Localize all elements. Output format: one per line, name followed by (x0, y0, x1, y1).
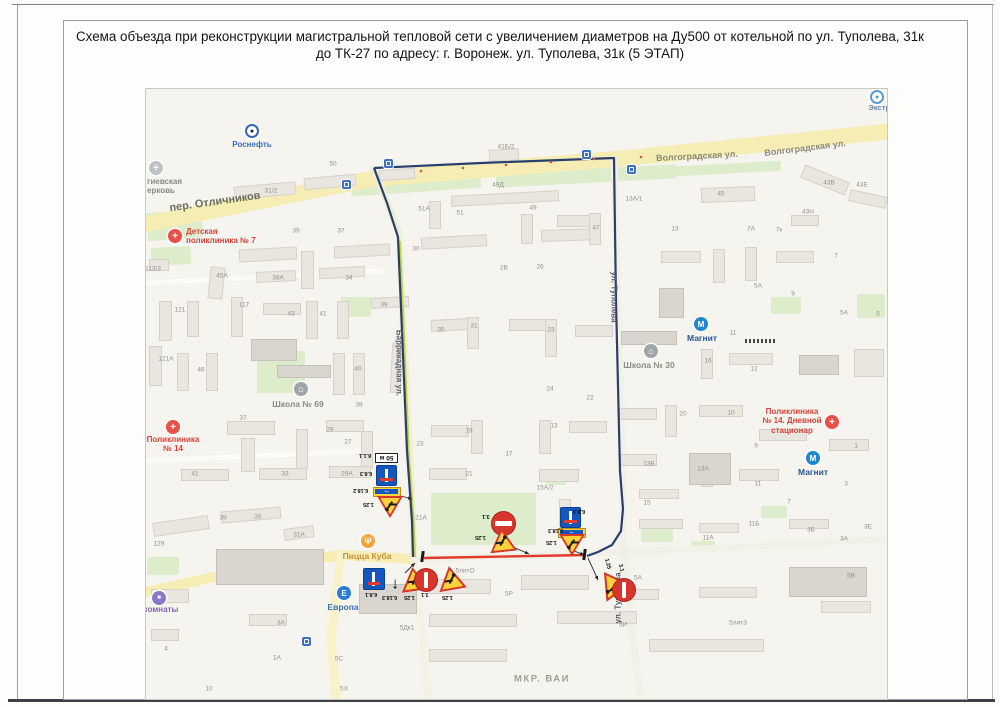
building-number: 39 (380, 302, 387, 309)
building-number: 11 (755, 481, 762, 488)
building-number: 13 (671, 226, 678, 233)
road-sign-noe (613, 579, 635, 601)
poi-label-school-30: Школа № 30 (623, 360, 674, 370)
map-dot (550, 161, 553, 164)
building-number: 45А (216, 273, 228, 280)
building-number: 23 (416, 441, 423, 448)
building-number: 43Н (802, 209, 814, 216)
building-number: 121 (175, 307, 186, 314)
poi-label-rosneft: Роснефть (232, 140, 271, 149)
building-number: 5А (754, 283, 762, 290)
transit-stop-icon (342, 180, 351, 189)
building-number: 117 (239, 302, 249, 309)
building-number: 23 (547, 327, 554, 334)
building-number: 7 (834, 253, 838, 260)
building-number: 35 (437, 327, 444, 334)
building-number: 5Х (340, 686, 348, 693)
building-number: 27 (344, 439, 351, 446)
building-number: 11Б (748, 521, 759, 528)
transit-stop-icon (384, 159, 393, 168)
building-number: 5лит3 (729, 620, 747, 627)
poi-icon-rosneft: ● (245, 124, 259, 138)
building-number: 31/2 (265, 188, 278, 195)
poi-label-clinic-14: Поликлиника № 14 (147, 435, 200, 454)
building-number: 19 (465, 428, 472, 435)
poi-label-europa: Европа (327, 602, 358, 612)
building-number: 49 (529, 205, 536, 212)
road-sign-detv: ↑ (388, 564, 399, 593)
building-number: 5И (619, 622, 627, 629)
street-label: МКР. ВАИ (514, 674, 570, 685)
poi-icon-school-69: ⌂ (294, 382, 308, 396)
building-number: 26 (536, 264, 543, 271)
scan-border-left (17, 4, 18, 701)
building-number: 29А (341, 471, 353, 478)
sign-code-label: 1.25 (363, 501, 374, 507)
detour-arrow-glyph: → (376, 490, 399, 495)
building-number: 45 (717, 191, 724, 198)
building-number: 39 (219, 515, 226, 522)
building-number: 29 (326, 427, 333, 434)
poi-icon-komnaty: ■ (152, 591, 166, 605)
building-number: 30 (412, 246, 419, 253)
road-sign-tri (435, 564, 467, 592)
building-number: 3Б (807, 527, 815, 534)
building-number: 13А (697, 466, 709, 473)
poi-icon-magnit-north: М (694, 317, 708, 331)
building-number: 13А/1 (626, 196, 643, 203)
building-number: 5С (335, 656, 343, 663)
scan-border-top (12, 4, 994, 5)
building-number: 16 (704, 358, 711, 365)
building-number: 39 (292, 228, 299, 235)
building-number: 40 (354, 366, 361, 373)
building-number: 43В (823, 180, 835, 187)
map-dot (593, 158, 596, 161)
map-dot (462, 167, 465, 170)
building-number: 9 (754, 443, 758, 450)
sign-code-label: 1.25 (404, 594, 415, 600)
sign-code-label: 3.1 (482, 513, 490, 519)
building-number: 5 (876, 311, 880, 318)
poi-icon-clinic-14-day: + (825, 415, 839, 429)
building-number: 7А (747, 226, 755, 233)
sign-code-label: 1.25 (442, 594, 453, 600)
sign-code-label: 6.18.2 (353, 487, 368, 493)
building-number: 43 (287, 311, 294, 318)
poi-label-extragaz: Экстрага (869, 104, 888, 113)
sign-code-label: 8.1.1 (359, 452, 371, 458)
map-dot (420, 170, 423, 173)
building-number: 41Б/2 (498, 144, 515, 151)
building-number: 15А/2 (537, 485, 554, 492)
building-number: 15 (643, 500, 650, 507)
sign-code-label: 3.1 (421, 591, 429, 597)
building-number: 13 (550, 423, 557, 430)
building-number: 24 (546, 386, 553, 393)
road-sign-tri (377, 496, 403, 518)
building-number: 5А (840, 310, 848, 317)
poi-icon-children-clinic-7: + (168, 229, 182, 243)
scanned-document-page: Схема объезда при реконструкции магистра… (0, 0, 1000, 707)
poi-label-komnaty: комнаты (145, 605, 178, 614)
building-number: 113/3 (145, 266, 161, 273)
building-number: 13Б (643, 461, 655, 468)
building-number: 7 (787, 499, 791, 506)
scheme-title-line2: до ТК-27 по адресу: г. Воронеж. ул. Тупо… (50, 45, 950, 62)
building-number: 5Р (505, 591, 513, 598)
building-number: 31А (293, 532, 305, 539)
building-number: 33 (281, 471, 288, 478)
building-number: 12 (750, 366, 757, 373)
road-sign-tri (488, 527, 517, 554)
building-number: 5Дк1 (400, 625, 414, 632)
map-dot (640, 156, 643, 159)
map-dot (505, 164, 508, 167)
building-number: 1А (273, 655, 281, 662)
poi-label-magnit-south: Магнит (798, 467, 828, 477)
building-number: 3 (844, 481, 848, 488)
building-number: 20 (679, 411, 686, 418)
building-number: 31 (470, 323, 477, 330)
building-number: 49Д (492, 182, 504, 189)
route-layer (146, 89, 888, 700)
building-number: 47 (592, 225, 599, 232)
building-number: 121А (158, 356, 173, 363)
building-number: 4 (164, 646, 168, 653)
street-label: Баррикадная ул. (395, 330, 404, 396)
poi-label-church: гиевская ерковь (147, 177, 182, 196)
poi-label-school-69: Школа № 69 (272, 399, 323, 409)
building-number: 38 (355, 402, 362, 409)
sign-code-label: 1.25 (475, 534, 486, 540)
poi-label-children-clinic-7: Детская поликлиника № 7 (186, 227, 256, 246)
poi-icon-clinic-14: + (166, 420, 180, 434)
poi-icon-church: + (149, 161, 163, 175)
poi-label-clinic-14-day: Поликлиника № 14. Дневной стационар (762, 407, 821, 435)
road-sign-plate: 50 м (375, 453, 398, 463)
sign-code-label: 6.18.3 (548, 527, 563, 533)
building-number: 2В (500, 265, 508, 272)
building-number: 10 (727, 410, 734, 417)
building-number: 3А (840, 536, 848, 543)
scheme-title-line1: Схема объезда при реконструкции магистра… (50, 28, 950, 45)
sign-code-label: 6.8.1 (365, 591, 377, 597)
building-number: 46 (197, 367, 204, 374)
building-number: 17 (505, 451, 512, 458)
poi-icon-extragaz: ● (870, 90, 884, 104)
sign-code-label: 6.18.3 (382, 594, 397, 600)
building-number: 21 (465, 471, 472, 478)
building-number: 37 (239, 415, 246, 422)
road-sign-dead (363, 568, 385, 590)
building-number: 21А (415, 515, 427, 522)
building-number: 1 (854, 443, 858, 450)
building-number: 5А (634, 575, 642, 582)
building-number: 41 (319, 311, 326, 318)
poi-icon-magnit-south: М (806, 451, 820, 465)
building-number: 3Е (864, 524, 872, 531)
building-number: 51 (456, 210, 463, 217)
sign-code-label: 1.25 (546, 539, 557, 545)
building-number: 34 (345, 275, 352, 282)
poi-label-pizza-kuba: Пицца Куба (343, 551, 392, 561)
building-number: 7к (776, 227, 782, 234)
building-number: 51А (418, 206, 430, 213)
poi-icon-school-30: ⌂ (644, 344, 658, 358)
building-number: 129 (154, 541, 165, 548)
building-number: 22 (586, 395, 593, 402)
building-number: 35 (254, 514, 261, 521)
road-sign-dead (376, 465, 397, 486)
transit-stop-icon (302, 637, 311, 646)
sign-code-label: 6.8.3 (573, 508, 585, 514)
building-number: 5В (847, 573, 855, 580)
city-map: пер. ОтличниковВолгоградская ул.Волгогра… (145, 88, 888, 700)
poi-label-magnit-north: Магнит (687, 333, 717, 343)
building-number: 3А (277, 620, 285, 627)
poi-icon-pizza-kuba: Ψ (361, 534, 375, 548)
road-sign-noe (415, 569, 437, 591)
building-number: 41 (191, 471, 198, 478)
transit-stop-icon (627, 165, 636, 174)
sign-code-label: 6.8.3 (360, 470, 372, 476)
transit-stop-icon (582, 150, 591, 159)
building-number: 38А (272, 275, 284, 282)
road-sign-tri (559, 534, 585, 556)
building-number: 11 (730, 330, 737, 337)
scheme-title: Схема объезда при реконструкции магистра… (50, 28, 950, 62)
scan-border-right (992, 4, 993, 701)
poi-icon-europa: Е (337, 586, 351, 600)
building-number: 50 (329, 161, 336, 168)
detour-arrow-glyph: ↑ (391, 576, 399, 593)
building-number: 43Е (856, 182, 868, 189)
building-number: 9 (791, 291, 795, 298)
street-label: ул. Туполева (610, 271, 619, 322)
building-number: 11А (702, 535, 713, 542)
building-number: 37 (337, 228, 344, 235)
building-number: 10 (205, 686, 212, 693)
